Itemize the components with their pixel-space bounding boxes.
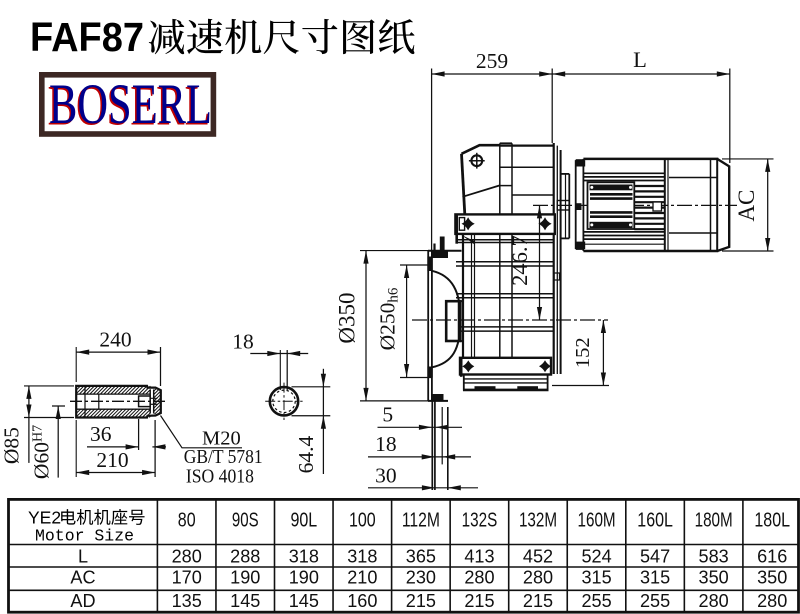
svg-text:180M: 180M: [695, 510, 733, 532]
svg-text:259: 259: [476, 49, 508, 73]
svg-text:315: 315: [581, 567, 611, 587]
svg-text:280: 280: [699, 591, 729, 611]
svg-text:18: 18: [232, 330, 254, 354]
svg-text:190: 190: [289, 567, 319, 587]
svg-text:280: 280: [757, 591, 787, 611]
svg-text:318: 318: [347, 547, 377, 567]
svg-text:FAF87: FAF87: [30, 14, 144, 60]
svg-text:210: 210: [96, 448, 128, 472]
svg-text:215: 215: [406, 591, 436, 611]
svg-text:Ø350: Ø350: [335, 292, 360, 343]
svg-text:280: 280: [172, 547, 202, 567]
svg-text:280: 280: [464, 567, 494, 587]
svg-text:YE2: YE2: [28, 508, 61, 528]
svg-text:246.7: 246.7: [507, 235, 532, 286]
svg-text:170: 170: [172, 567, 202, 587]
svg-text:315: 315: [640, 567, 670, 587]
svg-text:132M: 132M: [519, 510, 557, 532]
svg-text:Motor Size: Motor Size: [35, 527, 134, 546]
svg-text:318: 318: [289, 547, 319, 567]
svg-text:255: 255: [640, 591, 670, 611]
svg-text:90L: 90L: [290, 510, 317, 532]
svg-text:240: 240: [99, 328, 131, 352]
svg-text:160: 160: [347, 591, 377, 611]
svg-text:100: 100: [349, 510, 376, 532]
svg-text:132S: 132S: [462, 510, 498, 532]
svg-text:135: 135: [172, 591, 202, 611]
svg-text:280: 280: [523, 567, 553, 587]
svg-text:160L: 160L: [637, 510, 673, 532]
svg-text:AD: AD: [70, 591, 95, 611]
svg-text:255: 255: [581, 591, 611, 611]
svg-text:ISO 4018: ISO 4018: [186, 466, 254, 488]
svg-text:AC: AC: [70, 567, 95, 587]
svg-text:145: 145: [289, 591, 319, 611]
svg-text:452: 452: [523, 547, 553, 567]
svg-text:215: 215: [523, 591, 553, 611]
svg-text:152: 152: [572, 337, 594, 368]
svg-text:288: 288: [230, 547, 260, 567]
svg-text:80: 80: [178, 510, 196, 532]
svg-text:AC: AC: [734, 190, 759, 222]
svg-text:413: 413: [464, 547, 494, 567]
svg-text:L: L: [633, 47, 647, 72]
svg-text:616: 616: [757, 547, 787, 567]
svg-text:160M: 160M: [578, 510, 616, 532]
svg-text:36: 36: [90, 422, 112, 446]
svg-text:350: 350: [699, 567, 729, 587]
svg-text:145: 145: [230, 591, 260, 611]
svg-text:L: L: [78, 547, 88, 567]
svg-text:Ø85: Ø85: [0, 427, 24, 464]
svg-text:BOSERL: BOSERL: [49, 73, 212, 136]
svg-text:30: 30: [375, 463, 397, 487]
svg-text:365: 365: [406, 547, 436, 567]
svg-text:215: 215: [464, 591, 494, 611]
svg-text:210: 210: [347, 567, 377, 587]
svg-text:583: 583: [699, 547, 729, 567]
svg-text:180L: 180L: [754, 510, 790, 532]
svg-text:547: 547: [640, 547, 670, 567]
svg-text:Ø250h6: Ø250h6: [375, 287, 401, 350]
svg-text:230: 230: [406, 567, 436, 587]
svg-text:524: 524: [581, 547, 611, 567]
svg-text:Ø60H7: Ø60H7: [30, 425, 54, 479]
svg-text:90S: 90S: [232, 510, 259, 532]
svg-text:64.4: 64.4: [294, 436, 318, 474]
svg-text:350: 350: [757, 567, 787, 587]
svg-text:18: 18: [375, 432, 397, 456]
svg-text:190: 190: [230, 567, 260, 587]
svg-text:112M: 112M: [402, 510, 440, 532]
svg-text:5: 5: [382, 402, 393, 426]
